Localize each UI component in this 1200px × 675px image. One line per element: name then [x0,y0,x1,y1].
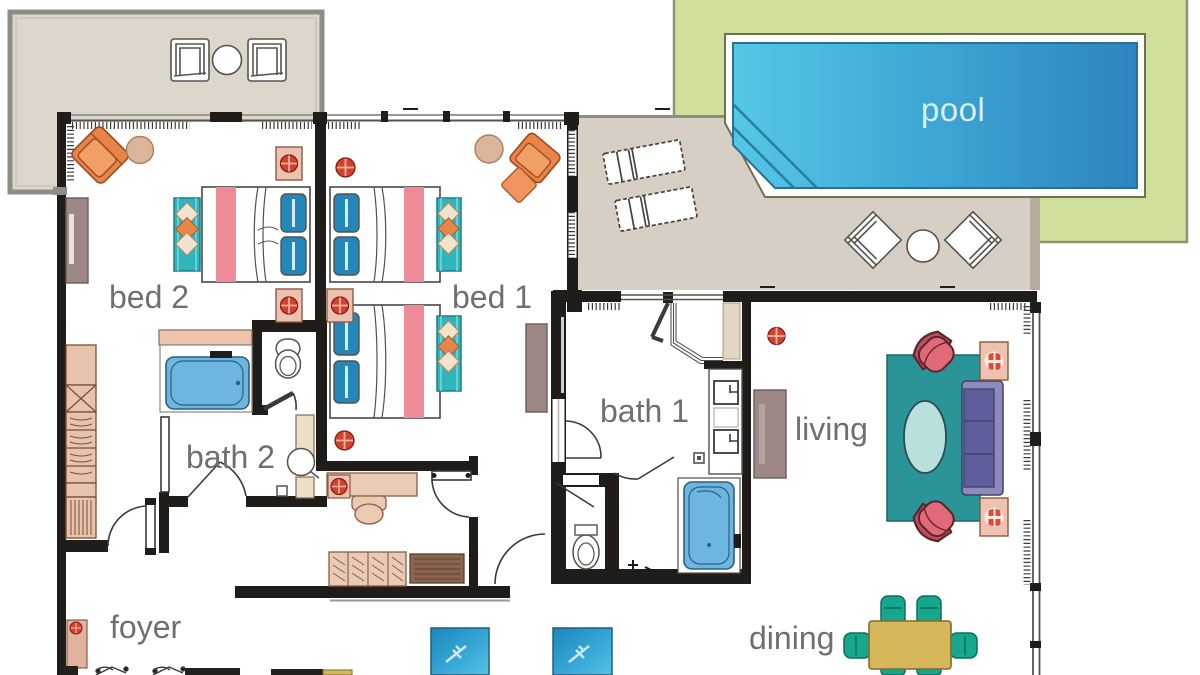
svg-text:bed 1: bed 1 [452,279,532,315]
svg-text:living: living [795,411,868,447]
svg-text:bed 2: bed 2 [109,279,189,315]
svg-text:bath 2: bath 2 [186,439,275,475]
svg-text:pool: pool [921,91,985,128]
svg-text:bath 1: bath 1 [600,393,689,429]
svg-text:dining: dining [749,620,834,656]
svg-text:foyer: foyer [110,609,181,645]
